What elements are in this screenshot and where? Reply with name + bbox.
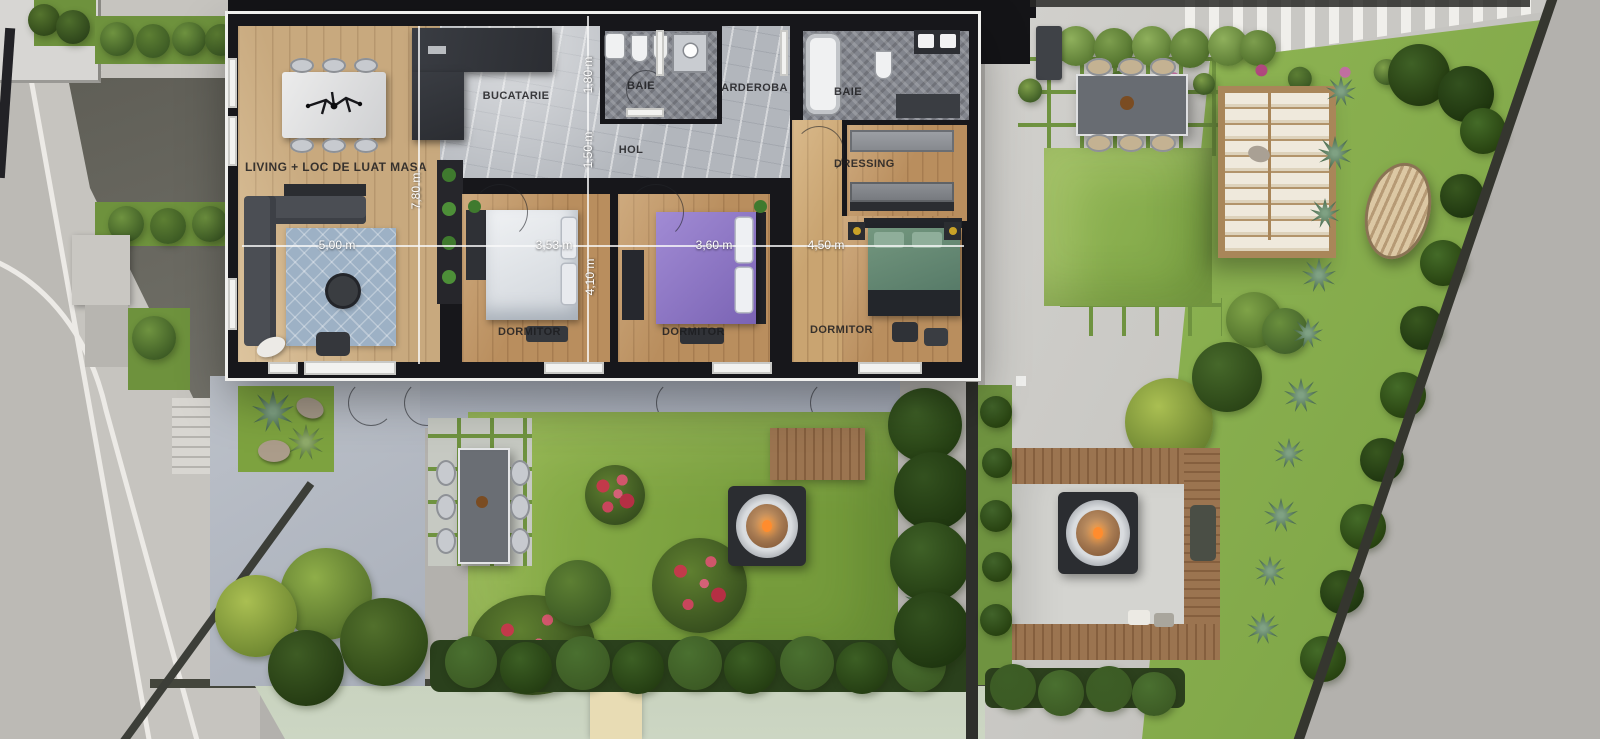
door-swing xyxy=(626,70,666,110)
plant xyxy=(442,168,456,182)
bed-throw xyxy=(868,290,960,316)
sink xyxy=(940,34,956,48)
dimension-label: 3,60 m xyxy=(664,238,764,252)
pillow xyxy=(562,264,576,304)
garden-chair xyxy=(510,528,530,554)
entry-stairs xyxy=(172,398,210,474)
lawn xyxy=(1044,148,1212,306)
armchair xyxy=(316,332,350,356)
hedge-bush xyxy=(668,636,722,690)
hedge-bush xyxy=(556,636,610,690)
door-swing xyxy=(472,184,528,240)
garden-chair xyxy=(510,494,530,520)
hedge-bush xyxy=(982,552,1012,582)
grass-clump xyxy=(1018,78,1043,103)
hedge-bush xyxy=(836,642,888,694)
room-label: BUCATARIE xyxy=(468,90,564,102)
window xyxy=(712,362,772,374)
coffee-table xyxy=(328,276,358,306)
hedge-column xyxy=(894,452,972,530)
top-wall-line xyxy=(1030,0,1530,7)
window xyxy=(228,116,237,166)
hedge xyxy=(56,10,90,44)
hedge-bush xyxy=(500,642,552,694)
lounge-chair xyxy=(1190,505,1216,561)
top-wall xyxy=(978,0,1030,64)
flame xyxy=(762,520,772,532)
sink xyxy=(606,34,624,58)
dining-chair xyxy=(290,138,314,153)
deck xyxy=(1008,624,1220,660)
garden-tree xyxy=(1192,342,1262,412)
gate-pillar xyxy=(85,305,128,367)
street-tree xyxy=(100,22,134,56)
dimension-label: 3,53 m xyxy=(504,238,604,252)
dining-chair xyxy=(322,58,346,73)
hedge-bush xyxy=(980,500,1012,532)
hedge-bush xyxy=(1132,672,1176,716)
dining-chair xyxy=(290,58,314,73)
dimension-label: 1,50 m xyxy=(581,120,595,180)
dimension-label: 7,80 m xyxy=(409,161,423,221)
plant xyxy=(442,202,456,216)
hedge-bush xyxy=(780,636,834,690)
room-label: HOL xyxy=(596,144,666,156)
boundary-fence xyxy=(966,382,978,739)
hedge xyxy=(28,4,60,36)
pillow xyxy=(736,268,752,312)
hedge-bush xyxy=(612,642,664,694)
dimension-label: 4,50 m xyxy=(776,238,876,252)
window xyxy=(228,58,237,108)
garden-chair xyxy=(1150,134,1176,152)
hedge-column xyxy=(894,592,970,668)
dresser xyxy=(622,250,644,320)
flame xyxy=(1093,527,1103,539)
garden-chair xyxy=(1150,58,1176,76)
garden-chair xyxy=(436,460,456,486)
door-frame xyxy=(656,30,664,76)
street-tree xyxy=(172,22,206,56)
gate-pillar xyxy=(72,235,130,305)
street-tree xyxy=(150,208,186,244)
garden-chair xyxy=(436,494,456,520)
counter-handle xyxy=(428,46,446,54)
terrace-door xyxy=(304,361,396,375)
hedge-bush xyxy=(724,642,776,694)
plant xyxy=(442,236,456,250)
headboard xyxy=(756,212,766,324)
rock xyxy=(258,440,290,462)
hedge-bush xyxy=(1240,30,1276,66)
hedge-column xyxy=(890,522,970,602)
door-swing xyxy=(628,184,684,240)
pergola-beam xyxy=(1268,90,1271,240)
hedge-bush xyxy=(990,664,1036,710)
lamp xyxy=(853,227,861,235)
cushion xyxy=(1128,610,1150,625)
garden-tree xyxy=(268,630,344,706)
marker-dot xyxy=(1016,376,1026,386)
grass-clump xyxy=(1193,72,1216,95)
street-tree xyxy=(192,206,228,242)
garden-chair xyxy=(510,460,530,486)
pergola xyxy=(1218,86,1336,258)
floor-plan: LIVING + LOC DE LUAT MASA BUCATARIE HOL … xyxy=(228,14,978,378)
window xyxy=(268,362,298,374)
hedge-bush xyxy=(1086,666,1132,712)
room-label: BAIE xyxy=(788,86,908,98)
dimension-label: 4,10 m xyxy=(583,247,597,307)
dimension-label: 5,00 m xyxy=(287,238,387,252)
wardrobe-rail xyxy=(850,202,954,211)
console xyxy=(284,184,366,196)
dimension-label: 1,80 m xyxy=(581,45,595,105)
dining-chair xyxy=(354,58,378,73)
toilet xyxy=(876,52,891,78)
door-swing xyxy=(348,380,394,426)
hedge-bush xyxy=(980,396,1012,428)
hedge-bush xyxy=(980,604,1012,636)
door-swing xyxy=(794,126,844,176)
room-label: LIVING + LOC DE LUAT MASA xyxy=(238,160,434,174)
room-label: DORMITOR xyxy=(792,324,980,336)
shrub xyxy=(545,560,611,626)
room-label: DORMITOR xyxy=(618,326,814,338)
window xyxy=(858,362,922,374)
window xyxy=(544,362,604,374)
hedge-bush xyxy=(982,448,1012,478)
rose-bush xyxy=(585,465,645,525)
sink xyxy=(918,34,934,48)
centerpiece xyxy=(1120,96,1134,110)
garden-chair xyxy=(1118,58,1144,76)
planting-strip xyxy=(978,385,1012,685)
cushion xyxy=(1154,613,1174,627)
pink-flower xyxy=(1339,67,1350,78)
street-tree xyxy=(136,24,170,58)
window xyxy=(228,278,237,330)
dining-chair xyxy=(322,138,346,153)
toilet xyxy=(632,36,647,61)
dining-chair xyxy=(354,138,378,153)
shower-head xyxy=(684,44,697,57)
garden-tree xyxy=(340,598,428,686)
garden-chair xyxy=(1118,134,1144,152)
door-threshold xyxy=(626,108,664,117)
deck xyxy=(770,428,865,480)
centerpiece xyxy=(476,496,488,508)
hedge-column xyxy=(888,388,962,462)
door-frame xyxy=(780,30,788,76)
bathtub xyxy=(806,34,840,114)
plant xyxy=(754,200,767,213)
hedge-bush xyxy=(445,636,497,688)
hedge-bush xyxy=(1038,670,1084,716)
hedge-bush xyxy=(1170,28,1210,68)
room-label: DRESSING xyxy=(828,158,964,170)
wardrobe xyxy=(850,130,954,152)
chandelier xyxy=(302,86,366,126)
plant xyxy=(442,270,456,284)
wardrobe xyxy=(850,182,954,202)
lamp xyxy=(949,227,957,235)
sofa xyxy=(244,196,276,346)
site-plan-render: LIVING + LOC DE LUAT MASA BUCATARIE HOL … xyxy=(0,0,1600,739)
garden-chair xyxy=(1086,134,1112,152)
street-tree xyxy=(132,316,176,360)
garden-chair xyxy=(436,528,456,554)
garden-chair xyxy=(1086,58,1112,76)
shrub xyxy=(1262,308,1308,354)
pink-flower xyxy=(1255,64,1268,77)
